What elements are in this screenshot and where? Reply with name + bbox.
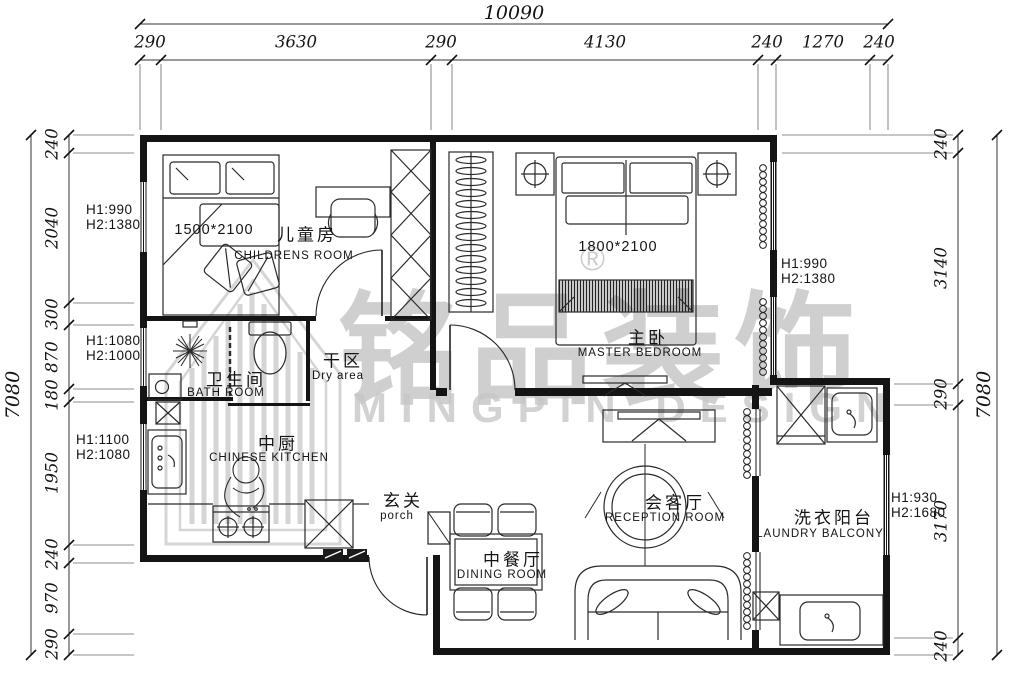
dim-left-seg-5: 1950: [43, 452, 62, 494]
dim-right-seg-4: 240: [932, 630, 951, 662]
room-label-porch-en: porch: [380, 510, 414, 522]
childrens-desk: [316, 187, 390, 217]
room-label-kitchen-en: CHINESE KITCHEN: [209, 452, 329, 464]
note-line: H2:1680: [891, 505, 946, 520]
note-line: H1:990: [781, 256, 836, 271]
shower-icon: [173, 321, 207, 368]
dim-top-total: 10090: [484, 2, 544, 24]
curtain-reception-2: [744, 553, 751, 630]
dim-left-seg-3: 870: [43, 341, 62, 373]
note-line: H1:1080: [86, 333, 141, 348]
room-label-dining-zh: 中餐厅: [483, 546, 543, 571]
laundry-sink-bottom: [780, 595, 883, 645]
master-bed-size: 1800*2100: [578, 239, 657, 255]
room-label-kitchen-zh: 中厨: [258, 430, 298, 455]
room-label-laundry-en: LAUNDRY BALCONY: [756, 528, 884, 540]
nightstand-right: [698, 153, 736, 195]
dim-top-seg-2: 290: [425, 33, 457, 52]
window-note-childrens: H1:990H2:1380: [86, 202, 141, 232]
window-note-master: H1:990H2:1380: [781, 256, 836, 286]
dim-left-seg-0: 240: [43, 128, 62, 160]
nightstand-left: [516, 153, 554, 195]
person-figure: [225, 457, 264, 517]
dim-right-seg-2: 290: [932, 378, 951, 410]
curtain-master-2: [760, 299, 767, 376]
childrens-wardrobe: [391, 150, 431, 320]
dim-top-seg-6: 240: [863, 33, 895, 52]
room-label-bath-en: BATH ROOM: [187, 387, 265, 399]
note-line: H2:1380: [781, 271, 836, 286]
room-label-porch-zh: 玄关: [383, 487, 423, 512]
window-childrens-left: [140, 182, 148, 252]
dim-left-seg-1: 2040: [43, 207, 62, 249]
master-furniture: [449, 152, 736, 396]
window-note-laundry: H1:930H2:1680: [891, 490, 946, 520]
window-kitchen-left: [140, 424, 148, 490]
dim-left-seg-2: 300: [43, 298, 62, 330]
kitchen-sink: [148, 430, 186, 494]
room-label-master-zh: 主卧: [628, 324, 668, 349]
room-label-reception-en: RECEPTION ROOM: [605, 512, 725, 524]
note-line: H2:1000: [86, 348, 141, 363]
bathroom-basin: [149, 374, 181, 400]
note-line: H2:1380: [86, 217, 141, 232]
window-master-right-1: [771, 162, 777, 250]
room-label-childrens-en: CHILDRENS ROOM: [234, 250, 353, 262]
bathroom-cabinet: [156, 402, 180, 424]
floorplan-page: 铭品装饰 MINGPIN DESIGN ®: [0, 0, 1016, 675]
door-master: [450, 325, 515, 390]
dim-left-seg-6: 240: [43, 538, 62, 570]
door-entrance: [369, 557, 427, 615]
laundry-cabinet: [753, 592, 779, 620]
window-laundry-right: [884, 455, 890, 555]
window-note-kitchen: H1:1100H2:1080: [76, 432, 131, 462]
dim-right-total: 7080: [973, 371, 995, 419]
dim-right-seg-1: 3140: [932, 247, 951, 289]
dim-left-seg-7: 970: [43, 582, 62, 614]
door-frame-pier: [428, 512, 450, 544]
stove: [213, 506, 269, 542]
dim-left-seg-8: 290: [43, 628, 62, 660]
laundry-sink-top: [827, 388, 877, 442]
room-label-dining-en: DINING ROOM: [457, 569, 547, 581]
note-line: H1:1100: [76, 432, 131, 447]
reception-tv-cabinet: [603, 410, 715, 442]
room-label-dry-zh: 干区: [323, 347, 363, 372]
dim-left-seg-4: 180: [43, 379, 62, 411]
window-bath-left: [140, 328, 148, 386]
curtain-reception-1: [744, 409, 751, 479]
childrens-bed-size: 1500*2100: [174, 222, 253, 238]
window-master-right-2: [771, 297, 777, 375]
dim-right-seg-0: 240: [932, 128, 951, 160]
kitchen-cabinet: [305, 500, 353, 548]
room-label-childrens-zh: 儿童房: [277, 221, 337, 246]
room-label-reception-zh: 会客厅: [645, 489, 705, 514]
washing-machine: [777, 386, 825, 444]
dim-left-total: 7080: [2, 371, 24, 419]
dim-top-seg-0: 290: [134, 33, 166, 52]
dim-top-seg-3: 4130: [584, 33, 626, 52]
sofa: [575, 566, 741, 640]
dim-top-seg-1: 3630: [275, 33, 317, 52]
master-wardrobe: [449, 152, 493, 312]
curtain-master-1: [760, 165, 767, 249]
dim-top-seg-4: 240: [751, 33, 783, 52]
window-note-bath: H1:1080H2:1000: [86, 333, 141, 363]
reception-furniture: [575, 410, 741, 640]
note-line: H2:1080: [76, 447, 131, 462]
dim-top-seg-5: 1270: [802, 33, 844, 52]
note-line: H1:990: [86, 202, 141, 217]
note-line: H1:930: [891, 490, 946, 505]
room-label-laundry-zh: 洗衣阳台: [794, 504, 874, 529]
room-label-dry-en: Dry area: [312, 370, 364, 382]
room-label-master-en: MASTER BEDROOM: [578, 347, 703, 359]
